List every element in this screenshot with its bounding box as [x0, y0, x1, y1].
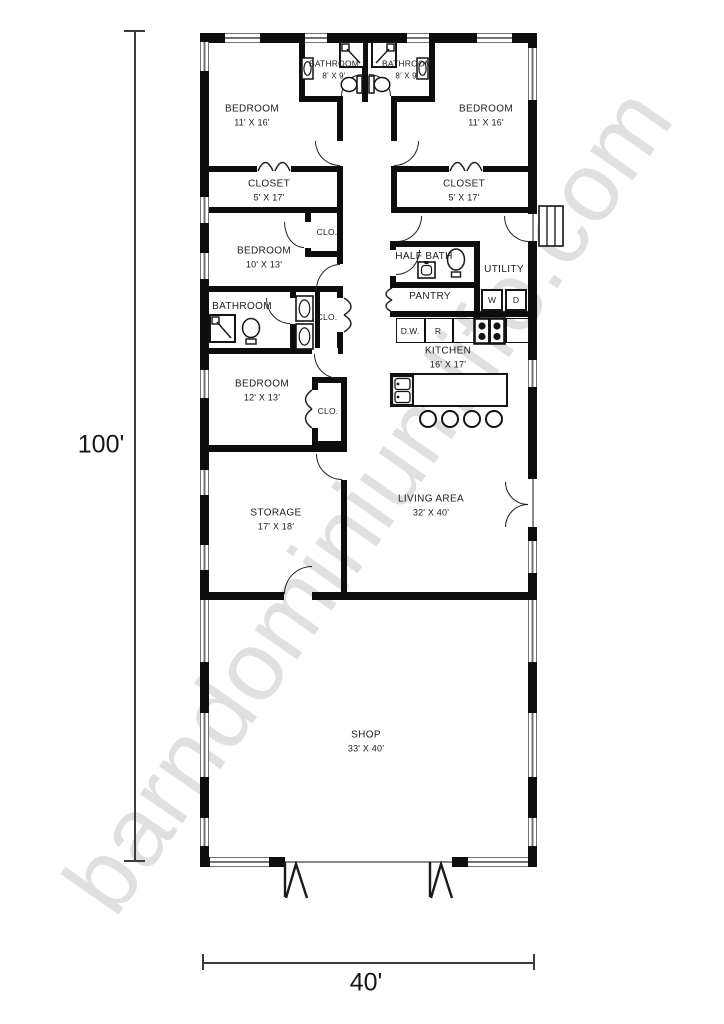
double-door-icon: [299, 389, 313, 429]
window: [528, 600, 537, 662]
stove-icon: [473, 317, 506, 345]
double-door-icon: [343, 297, 358, 333]
room-label-storage: STORAGE 17' X 18': [250, 507, 301, 534]
wall: [474, 241, 480, 318]
wall: [200, 445, 347, 452]
door-swing-arc: [315, 141, 340, 166]
shop-door-icon: [283, 861, 310, 900]
dimension-line-horizontal: [203, 962, 535, 964]
room-label-bedroom-lower: BEDROOM 12' X 13': [235, 378, 289, 405]
washer-label: W: [481, 289, 503, 311]
wall: [312, 592, 537, 600]
room-label-kitchen: KITCHEN 16' X 17': [425, 345, 471, 372]
window: [528, 360, 537, 387]
wall: [483, 166, 537, 172]
window: [200, 197, 209, 223]
room-label-bathroom-middle: BATHROOM: [212, 300, 272, 314]
window: [200, 42, 209, 71]
wall: [337, 332, 343, 348]
range-label: R: [424, 318, 452, 343]
floor-plan-canvas: barndominiumlife.com: [0, 0, 724, 1024]
door-threshold: [285, 861, 452, 863]
dimension-label-width: 40': [350, 969, 383, 998]
window: [200, 545, 209, 570]
double-door-icon: [379, 287, 393, 313]
room-label-bathroom-top-right: BATHROOM 8' X 9': [382, 58, 432, 81]
door-swing-arc: [397, 216, 422, 242]
entry-steps-icon: [538, 205, 564, 247]
wall: [390, 241, 480, 247]
wall: [200, 592, 284, 600]
watermark-text: barndominiumlife.com: [41, 67, 695, 933]
wall: [200, 207, 343, 213]
room-label-bedroom-top-right: BEDROOM 11' X 16': [459, 103, 513, 130]
room-label-living-area: LIVING AREA 32' X 40': [398, 493, 464, 520]
room-label-closet-small-top: CLO.: [317, 227, 338, 239]
wall: [291, 166, 343, 172]
room-label-closet-left: CLOSET 5' X 17': [248, 178, 290, 205]
window: [528, 541, 537, 573]
door-swing-arc: [316, 264, 340, 290]
dimension-label-height: 100': [78, 431, 124, 460]
window: [477, 33, 512, 43]
window: [200, 370, 209, 398]
wall: [305, 251, 343, 257]
room-label-closet-small-lower: CLO.: [318, 406, 339, 418]
wall: [337, 96, 343, 141]
wall: [391, 96, 397, 141]
dishwasher-label: D.W.: [396, 318, 424, 343]
wall: [390, 282, 480, 288]
bar-stool: [485, 410, 503, 428]
window: [407, 33, 429, 43]
wall: [305, 213, 311, 222]
door-swing-arc: [505, 482, 528, 505]
room-label-half-bath: HALF BATH: [395, 250, 452, 264]
dimension-line-vertical: [134, 31, 136, 862]
toilet-icon: [240, 317, 262, 346]
bifold-door-icon: [257, 158, 291, 173]
bifold-door-icon: [449, 158, 483, 173]
dimension-tick: [533, 954, 535, 970]
wall: [391, 207, 537, 213]
door-swing-arc: [394, 141, 419, 166]
wall: [341, 377, 347, 447]
window: [225, 33, 260, 43]
wall: [391, 172, 397, 207]
counter-divider: [452, 318, 454, 343]
sink-icon: [295, 323, 314, 350]
island-sink-icon: [391, 375, 414, 406]
wall: [200, 166, 257, 172]
window: [200, 713, 209, 777]
dimension-tick: [124, 860, 145, 862]
window: [528, 713, 537, 777]
door-swing-arc: [505, 504, 528, 527]
wall: [341, 480, 347, 598]
bar-stool: [441, 410, 459, 428]
window: [210, 857, 269, 867]
room-label-closet-right: CLOSET 5' X 17': [443, 178, 485, 205]
dryer-label: D: [505, 289, 527, 311]
room-label-bedroom-top-left: BEDROOM 11' X 16': [225, 103, 279, 130]
shop-door-icon: [428, 861, 455, 900]
room-label-bedroom-middle: BEDROOM 10' X 13': [237, 245, 291, 272]
sink-icon: [295, 295, 314, 322]
shower-icon: [209, 314, 236, 343]
room-label-utility: UTILITY: [484, 263, 524, 277]
window: [468, 857, 528, 867]
dimension-tick: [124, 30, 145, 32]
room-label-bathroom-top-left: BATHROOM 8' X 9': [309, 58, 359, 81]
door-threshold: [532, 214, 534, 241]
room-label-closet-small-mid: CLO.: [317, 312, 338, 324]
window: [528, 48, 537, 100]
window: [200, 818, 209, 846]
wall: [391, 166, 449, 172]
wall: [390, 241, 396, 250]
room-label-shop: SHOP 33' X 40': [348, 729, 384, 756]
dimension-tick: [202, 954, 204, 970]
wall: [390, 311, 530, 317]
window: [200, 253, 209, 279]
bar-stool: [463, 410, 481, 428]
window: [200, 470, 209, 495]
room-label-pantry: PANTRY: [409, 290, 451, 304]
window: [528, 818, 537, 846]
wall: [337, 172, 343, 207]
bar-stool: [419, 410, 437, 428]
wall: [391, 96, 435, 102]
door-swing-arc: [314, 354, 339, 379]
door-threshold: [532, 479, 534, 527]
wall: [299, 96, 341, 102]
window: [200, 600, 209, 662]
window: [305, 33, 327, 43]
